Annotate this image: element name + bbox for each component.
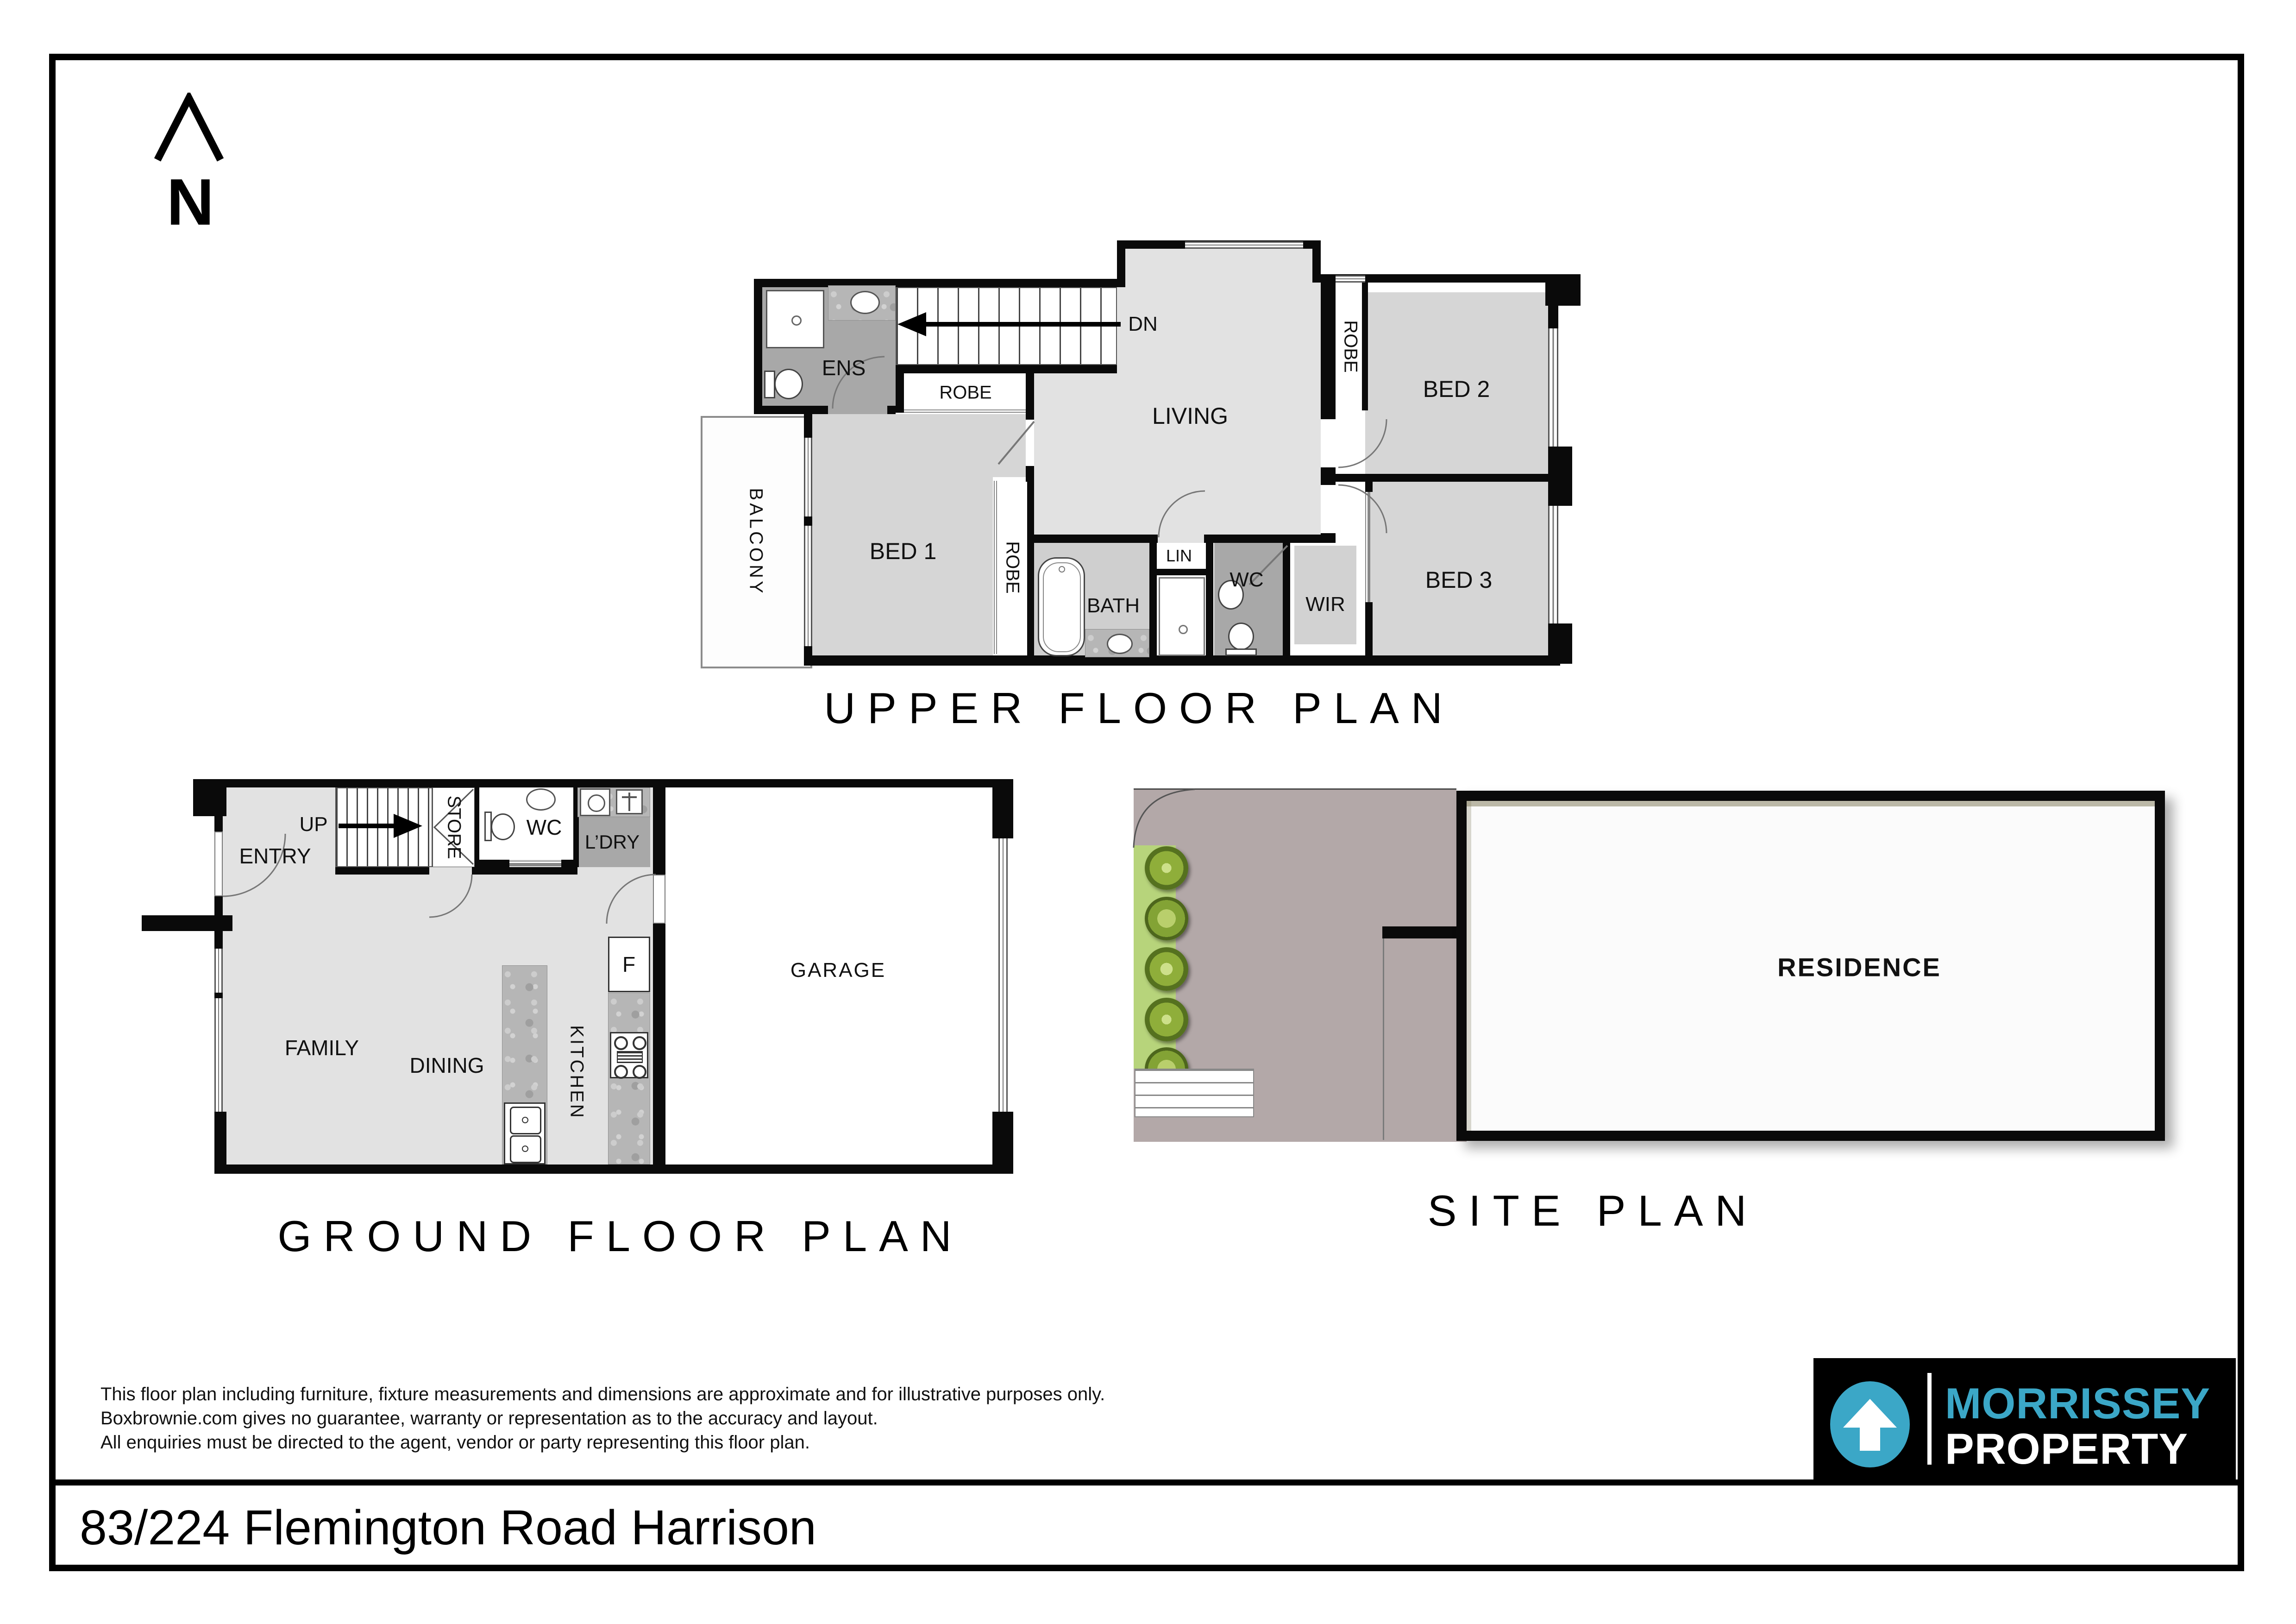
room-label-wir: WIR	[1305, 593, 1345, 616]
room-label-ens: ENS	[822, 355, 866, 380]
room-label-kitchen: KITCHEN	[566, 1025, 587, 1120]
floorplan-sheet: N	[0, 0, 2296, 1624]
room-label-family: FAMILY	[285, 1035, 359, 1060]
room-label-bed1: BED 1	[870, 538, 937, 565]
room-label-bed3: BED 3	[1425, 567, 1493, 593]
room-label-entry: ENTRY	[239, 843, 311, 869]
room-label-garage: GARAGE	[790, 959, 886, 982]
room-label-wc-ground: WC	[527, 815, 562, 840]
room-label-balcony: BALCONY	[746, 488, 766, 596]
room-label-bed2: BED 2	[1423, 376, 1490, 403]
room-label-wc-upper: WC	[1230, 568, 1263, 592]
label-fridge: F	[622, 952, 635, 977]
room-label-living: LIVING	[1152, 403, 1228, 429]
room-label-robe-bed1: ROBE	[1002, 541, 1023, 593]
room-label-store: STORE	[444, 795, 464, 859]
room-label-robe-top: ROBE	[939, 383, 991, 403]
stair-label-up: UP	[299, 813, 327, 836]
room-label-dining: DINING	[410, 1053, 484, 1078]
room-label-robe-bed2: ROBE	[1340, 320, 1361, 372]
room-label-bath: BATH	[1087, 594, 1140, 617]
stair-label-dn: DN	[1128, 313, 1158, 336]
room-label-ldry: L’DRY	[585, 831, 640, 853]
residence-label: RESIDENCE	[1777, 952, 1941, 982]
door-arcs-overlay	[0, 0, 2296, 1624]
room-label-lin: LIN	[1166, 546, 1192, 566]
